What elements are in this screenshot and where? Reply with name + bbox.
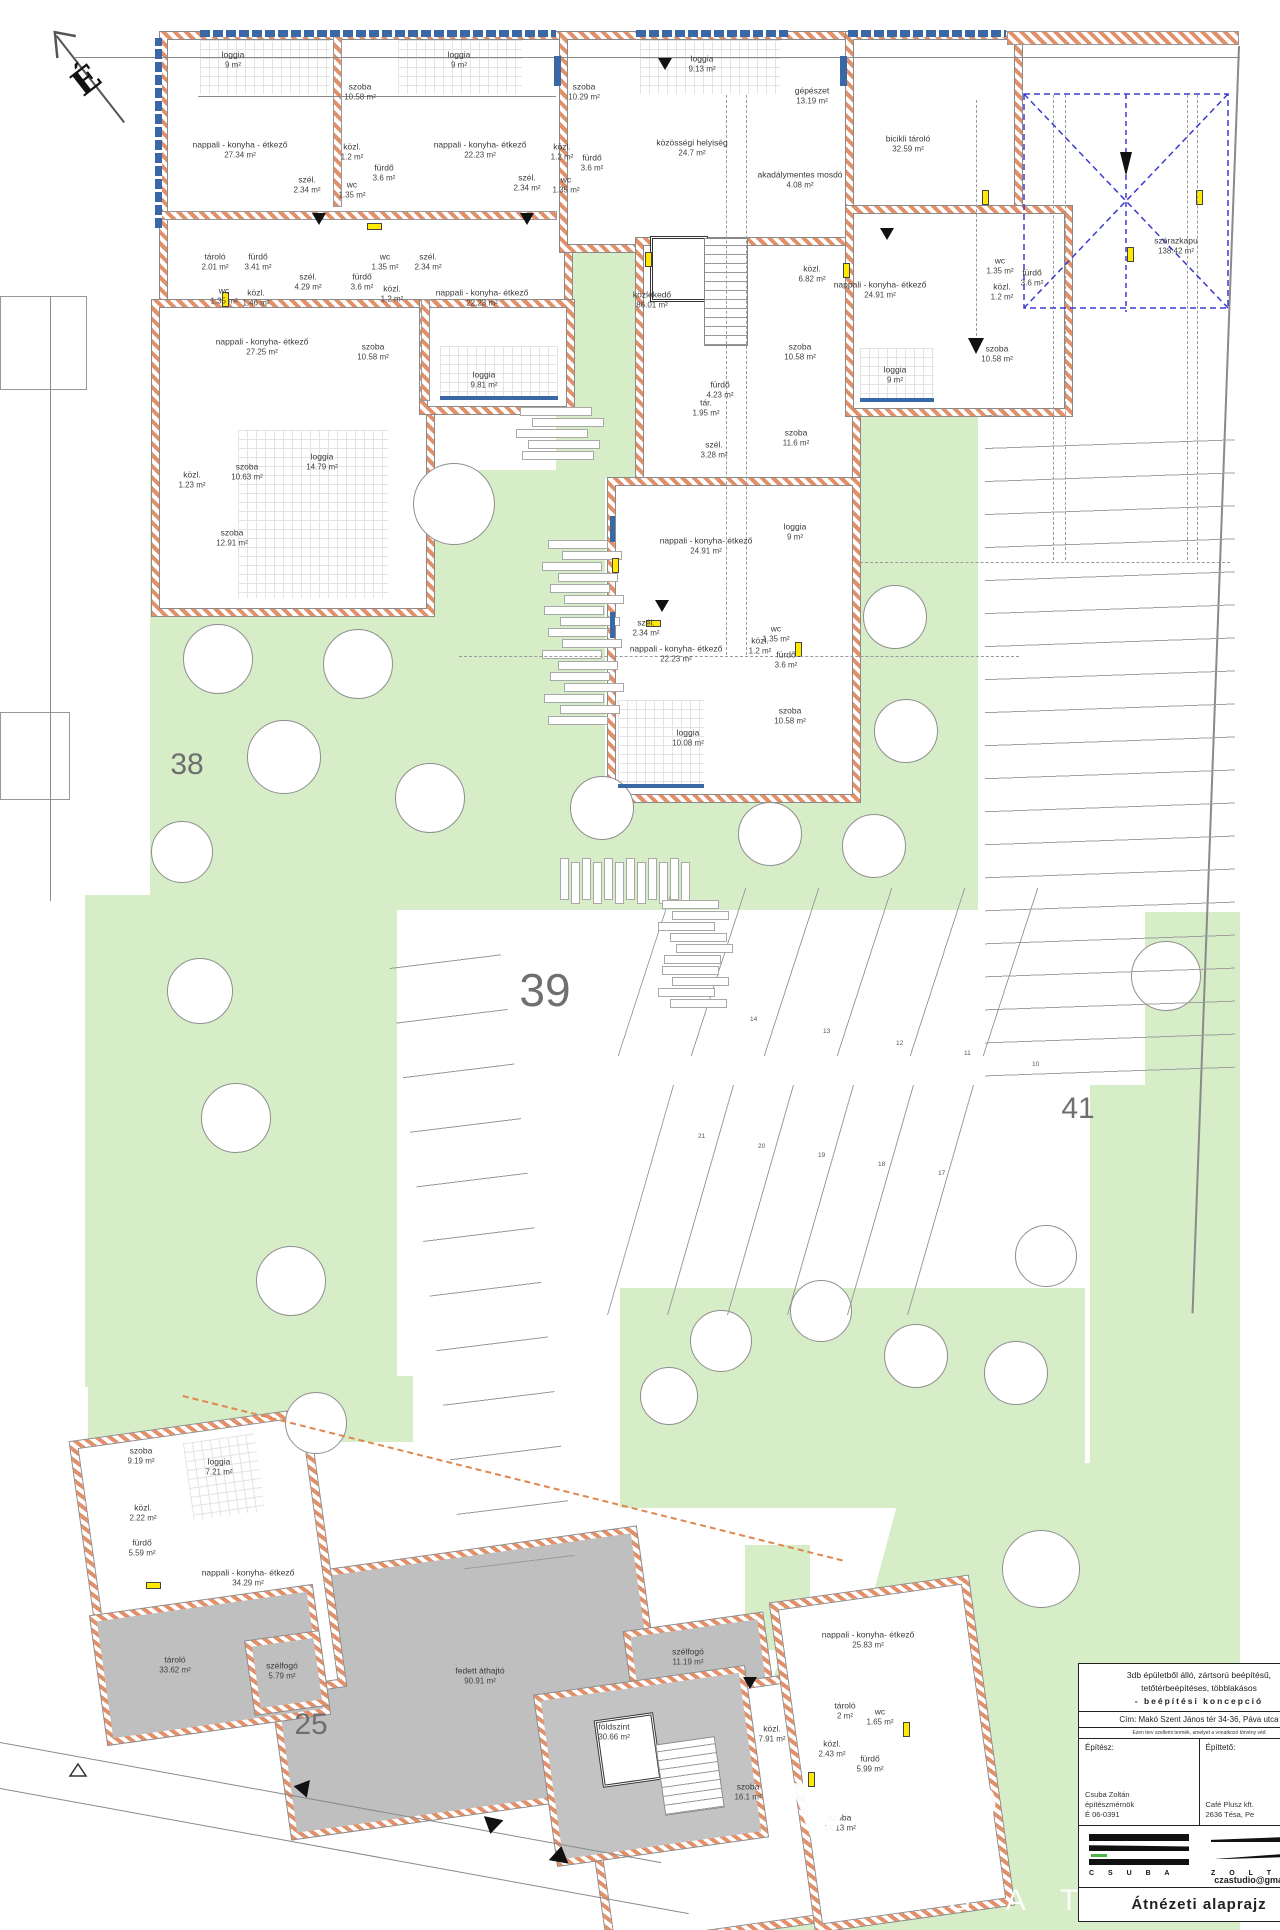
room-name: wc: [866, 1707, 893, 1718]
utility-mark: [367, 223, 382, 230]
room-name: földszint: [598, 1722, 630, 1733]
parking-stall-number: 17: [938, 1170, 945, 1177]
room-label: szoba11.6 m²: [783, 428, 810, 449]
room-label: nappali - konyha- étkező22.23 m²: [434, 140, 527, 161]
room-label: fürdő3.6 m²: [373, 163, 396, 184]
tree: [167, 958, 233, 1024]
room-label: loggia14.79 m²: [306, 452, 338, 473]
room-area: 3.6 m²: [581, 163, 604, 173]
room-label: szélfogó5.79 m²: [266, 1661, 298, 1682]
room-area: 10.58 m²: [357, 352, 389, 362]
boundary-wall-top-right: [1008, 32, 1238, 44]
room-name: loggia: [688, 54, 715, 65]
room-label: szoba10.63 m²: [231, 462, 263, 483]
window-strip: [636, 30, 788, 37]
logo-letters-left: C S U B A: [1089, 1870, 1175, 1877]
room-label: szél.3.28 m²: [700, 440, 727, 461]
room-name: közl.: [341, 142, 364, 153]
paving-bar: [662, 966, 719, 975]
room-area: 9.81 m²: [470, 380, 497, 390]
internal-wall: [160, 212, 556, 219]
desc-line1: 3db épületből álló, zártsorú beépítésű,: [1127, 1670, 1271, 1680]
paving-bar: [564, 683, 624, 692]
room-area: 2.34 m²: [513, 183, 540, 193]
room-area: 4.29 m²: [294, 282, 321, 292]
room-label: loggia9 m²: [222, 50, 245, 71]
building-bike-storage: [846, 32, 1022, 220]
parking-stall-number: 19: [818, 1152, 825, 1159]
room-area: 22.23 m²: [436, 298, 529, 308]
tree: [413, 463, 495, 545]
paving-bar: [670, 858, 679, 900]
tree: [640, 1367, 698, 1425]
room-name: szoba: [981, 344, 1013, 355]
paving-bar: [528, 440, 600, 449]
room-label: nappali - konyha- étkező24.91 m²: [660, 536, 753, 557]
neighbor-building: [0, 296, 87, 390]
tree: [984, 1341, 1048, 1405]
paving-bar: [560, 858, 569, 900]
room-area: 3.6 m²: [351, 282, 374, 292]
room-name: fürdő: [706, 380, 733, 391]
room-name: nappali - konyha- étkező: [834, 280, 927, 291]
paving-bar: [658, 922, 715, 931]
room-label: tároló33.62 m²: [159, 1655, 191, 1676]
room-name: nappali - konyha- étkező: [202, 1568, 295, 1579]
room-label: közl.2.43 m²: [818, 1739, 845, 1760]
room-name: gépészet: [795, 86, 830, 97]
room-area: 1.65 m²: [866, 1717, 893, 1727]
paving-bar: [558, 573, 618, 582]
room-label: tár.1.95 m²: [692, 398, 719, 419]
room-area: 1.95 m²: [692, 408, 719, 418]
room-area: 1.2 m²: [381, 294, 404, 304]
room-area: 10.63 m²: [231, 472, 263, 482]
room-name: szoba: [216, 528, 248, 539]
room-label: nappali - konyha- étkező22.23 m²: [630, 644, 723, 665]
room-name: loggia: [784, 522, 807, 533]
room-area: 10.58 m²: [784, 352, 816, 362]
tree: [395, 763, 465, 833]
room-label: szoba10.58 m²: [344, 82, 376, 103]
room-label: szoba10.58 m²: [357, 342, 389, 363]
room-label: szoba12.91 m²: [216, 528, 248, 549]
room-name: bicikli tároló: [886, 134, 930, 145]
paving-bar: [626, 858, 635, 900]
room-area: 5.59 m²: [128, 1548, 155, 1558]
room-label: fedett áthajtó90.91 m²: [455, 1666, 504, 1687]
room-area: 24.91 m²: [834, 290, 927, 300]
room-area: 7.21 m²: [205, 1467, 232, 1477]
window-strip: [440, 396, 558, 400]
room-area: 16.1 m²: [734, 1792, 761, 1802]
paving-bar: [648, 858, 657, 900]
utility-mark: [645, 252, 652, 267]
tree: [874, 699, 938, 763]
client-address: 2636 Tésa, Pe: [1206, 1810, 1255, 1819]
architect-label: Építész:: [1085, 1743, 1114, 1752]
architect-name: Csuba Zoltán: [1085, 1790, 1130, 1799]
room-label: tároló2 m²: [834, 1701, 855, 1722]
room-name: szélfogó: [672, 1647, 704, 1658]
site-plan-canvas: É loggia9 m²szoba10.58 m²loggia9 m²nappa…: [0, 0, 1280, 1930]
room-label: akadálymentes mosdó4.08 m²: [757, 170, 842, 191]
room-label: fürdő3.41 m²: [244, 252, 271, 273]
room-area: 13.19 m²: [795, 96, 830, 106]
room-area: 32.59 m²: [886, 144, 930, 154]
paving-bar: [664, 955, 721, 964]
room-label: loggia9 m²: [448, 50, 471, 71]
room-area: 3.41 m²: [244, 262, 271, 272]
room-area: 24.7 m²: [656, 148, 727, 158]
room-label: tároló2.01 m²: [201, 252, 228, 273]
paving-bar: [532, 418, 604, 427]
room-label: szoba10.58 m²: [774, 706, 806, 727]
room-name: loggia: [470, 370, 497, 381]
paving-bar: [670, 933, 727, 942]
room-name: tár.: [692, 398, 719, 409]
room-label: loggia9.81 m²: [470, 370, 497, 391]
room-name: fürdő: [373, 163, 396, 174]
room-area: 9 m²: [448, 60, 471, 70]
room-label: szoba10.58 m²: [981, 344, 1013, 365]
dashed-line: [976, 100, 977, 336]
paving-bar: [582, 858, 591, 900]
room-area: 86.01 m²: [633, 300, 671, 310]
room-name: fedett áthajtó: [455, 1666, 504, 1677]
room-name: loggia: [448, 50, 471, 61]
room-area: 22.23 m²: [434, 150, 527, 160]
room-area: 2.34 m²: [414, 262, 441, 272]
room-name: szoba: [357, 342, 389, 353]
entrance-arrow-icon: [743, 1677, 757, 1689]
room-name: loggia: [672, 728, 704, 739]
room-label: szél.2.34 m²: [293, 175, 320, 196]
room-area: 3.6 m²: [1021, 278, 1044, 288]
room-area: 1.2 m²: [991, 292, 1014, 302]
room-name: szoba: [344, 82, 376, 93]
room-label: közl.1.2 m²: [749, 636, 772, 657]
room-label: fürdő3.6 m²: [775, 650, 798, 671]
paving-bar: [672, 977, 729, 986]
room-name: loggia: [205, 1457, 232, 1468]
room-area: 11.6 m²: [783, 438, 810, 448]
tree: [201, 1083, 271, 1153]
room-label: wc1.35 m²: [371, 252, 398, 273]
room-name: szél.: [700, 440, 727, 451]
room-label: szoba9.19 m²: [127, 1446, 154, 1467]
room-label: szárazkapu138.42 m²: [1154, 236, 1197, 257]
room-area: 33.62 m²: [159, 1665, 191, 1675]
room-area: 1.2 m²: [341, 152, 364, 162]
utility-mark: [903, 1722, 910, 1737]
room-label: szél.2.34 m²: [513, 173, 540, 194]
north-arrow-icon: É: [25, 13, 157, 147]
room-label: loggia9.13 m²: [688, 54, 715, 75]
architect-reg: É 06-0391: [1085, 1810, 1120, 1819]
room-area: 1.23 m²: [178, 480, 205, 490]
room-name: közl.: [818, 1739, 845, 1750]
room-name: wc: [986, 256, 1013, 267]
room-label: szoba10.58 m²: [784, 342, 816, 363]
room-name: közl.: [758, 1724, 785, 1735]
tree: [247, 720, 321, 794]
paving-bar: [544, 606, 604, 615]
room-name: szél.: [294, 272, 321, 283]
paving-bar: [548, 540, 608, 549]
north-letter: É: [64, 57, 109, 104]
green-area: [1090, 1085, 1240, 1510]
room-area: 4.08 m²: [757, 180, 842, 190]
room-name: közl.: [991, 282, 1014, 293]
room-label: szél.2.34 m²: [632, 618, 659, 639]
client-cell: Építtető: Café Plusz kft. 2636 Tésa, Pe: [1199, 1739, 1280, 1825]
room-label: loggia9 m²: [884, 365, 907, 386]
plot-number: 25: [294, 1708, 327, 1742]
parking-stall-number: 11: [964, 1050, 971, 1057]
room-area: 10.08 m²: [672, 738, 704, 748]
room-name: szoba: [231, 462, 263, 473]
room-area: 27.34 m²: [193, 150, 288, 160]
room-area: 12.91 m²: [216, 538, 248, 548]
room-label: közl.1.2 m²: [551, 142, 574, 163]
room-label: bicikli tároló32.59 m²: [886, 134, 930, 155]
tree: [842, 814, 906, 878]
window-strip: [610, 516, 615, 542]
left-boundary-line: [50, 296, 51, 901]
room-area: 24.91 m²: [660, 546, 753, 556]
room-label: nappali - konyha - étkező27.34 m²: [193, 140, 288, 161]
paving-bar: [662, 900, 719, 909]
room-label: nappali - konyha- étkező24.91 m²: [834, 280, 927, 301]
room-label: fürdő3.6 m²: [351, 272, 374, 293]
parking-stall-number: 20: [758, 1143, 765, 1150]
room-label: fürdő3.6 m²: [1021, 268, 1044, 289]
client-label: Építtető:: [1206, 1743, 1236, 1752]
room-area: 9 m²: [222, 60, 245, 70]
street-marker: [292, 1777, 310, 1797]
plot-number: 39: [519, 963, 570, 1017]
street-marker: [549, 1844, 571, 1863]
room-area: 22.23 m²: [630, 654, 723, 664]
tree: [738, 802, 802, 866]
paving-bar: [615, 862, 624, 904]
loggia-edge-line: [198, 96, 556, 97]
dashed-line: [459, 656, 1019, 657]
room-name: közlekedő: [633, 290, 671, 301]
project-description: 3db épületből álló, zártsorú beépítésű, …: [1079, 1664, 1280, 1712]
room-area: 9 m²: [784, 532, 807, 542]
room-label: közl.1.2 m²: [381, 284, 404, 305]
room-area: 3.6 m²: [373, 173, 396, 183]
room-name: szél.: [513, 173, 540, 184]
room-label: nappali - konyha- étkező25.83 m²: [822, 1630, 915, 1651]
parking-rows-mid: [607, 1085, 1023, 1315]
paving-bar: [593, 862, 602, 904]
tree: [1015, 1225, 1077, 1287]
parking-stall-number: 21: [698, 1133, 705, 1140]
dashed-line: [860, 562, 1230, 563]
room-name: wc: [371, 252, 398, 263]
room-area: 14.79 m²: [306, 462, 338, 472]
room-name: szél.: [632, 618, 659, 629]
title-block: 3db épületből álló, zártsorú beépítésű, …: [1078, 1663, 1280, 1922]
room-label: közl.1.46 m²: [242, 288, 269, 309]
room-area: 9.19 m²: [127, 1456, 154, 1466]
paving-bar: [659, 862, 668, 904]
room-area: 25.83 m²: [822, 1640, 915, 1650]
room-label: közösségi helyiség24.7 m²: [656, 138, 727, 159]
loggia-floor: [440, 346, 558, 396]
room-name: tároló: [201, 252, 228, 263]
client-name: Café Plusz kft.: [1206, 1800, 1254, 1809]
room-name: tároló: [834, 1701, 855, 1712]
dashed-line: [726, 95, 727, 655]
room-area: 10.29 m²: [568, 92, 600, 102]
utility-mark: [146, 1582, 161, 1589]
room-name: közl.: [381, 284, 404, 295]
room-name: fürdő: [581, 153, 604, 164]
loggia-floor: [200, 40, 330, 94]
room-name: fürdő: [351, 272, 374, 283]
room-area: 1.35 m²: [210, 296, 237, 306]
parking-column-left: [387, 936, 574, 1570]
room-label: loggia10.08 m²: [672, 728, 704, 749]
room-area: 5.79 m²: [266, 1671, 298, 1681]
tree: [884, 1324, 948, 1388]
paving-bar: [571, 862, 580, 904]
neighbor-building: [0, 712, 70, 800]
room-label: földszint30.66 m²: [598, 1722, 630, 1743]
room-area: 3.6 m²: [775, 660, 798, 670]
staircase: [655, 1736, 724, 1816]
plot-number: 41: [1061, 1092, 1094, 1126]
room-name: wc: [210, 286, 237, 297]
room-area: 1.35 m²: [371, 262, 398, 272]
room-name: nappali - konyha - étkező: [193, 140, 288, 151]
room-area: 30.66 m²: [598, 1732, 630, 1742]
room-area: 2.01 m²: [201, 262, 228, 272]
window-strip: [860, 398, 934, 402]
room-label: nappali - konyha- étkező22.23 m²: [436, 288, 529, 309]
window-strip: [200, 30, 556, 37]
room-label: közl.1.2 m²: [341, 142, 364, 163]
room-name: fürdő: [1021, 268, 1044, 279]
paving-bar: [550, 584, 610, 593]
tree: [863, 585, 927, 649]
room-name: loggia: [884, 365, 907, 376]
room-name: loggia: [306, 452, 338, 463]
room-area: 6.82 m²: [798, 274, 825, 284]
room-name: loggia: [222, 50, 245, 61]
tree: [183, 624, 253, 694]
room-name: szoba: [774, 706, 806, 717]
paving-bar: [564, 595, 624, 604]
tree: [323, 629, 393, 699]
room-name: közl.: [798, 264, 825, 275]
paving-bar: [558, 661, 618, 670]
room-name: szoba: [784, 342, 816, 353]
room-area: 2.34 m²: [293, 185, 320, 195]
entrance-arrow-icon: [312, 213, 326, 225]
room-name: szélfogó: [266, 1661, 298, 1672]
room-area: 90.91 m²: [455, 1676, 504, 1686]
room-name: nappali - konyha- étkező: [660, 536, 753, 547]
utility-mark: [843, 263, 850, 278]
room-area: 1.35 m²: [986, 266, 1013, 276]
watermark-small: I N G A T: [845, 1884, 1092, 1918]
room-name: szoba: [127, 1446, 154, 1457]
paving-bar: [548, 628, 608, 637]
paving-bar: [562, 639, 622, 648]
room-name: közösségi helyiség: [656, 138, 727, 149]
room-area: 7.91 m²: [758, 1734, 785, 1744]
paving-bar: [658, 988, 715, 997]
room-label: nappali - konyha- étkező27.25 m²: [216, 337, 309, 358]
room-label: közl.1.23 m²: [178, 470, 205, 491]
architect-cell: Építész: Csuba Zoltán építészmérnök É 06…: [1079, 1739, 1199, 1825]
room-label: közl.1.2 m²: [991, 282, 1014, 303]
paving-bar: [670, 999, 727, 1008]
room-name: wc: [552, 175, 579, 186]
paving-bar: [550, 672, 610, 681]
room-label: wc1.35 m²: [986, 256, 1013, 277]
entrance-arrow-icon: [655, 600, 669, 612]
room-label: wc1.35 m²: [338, 180, 365, 201]
room-name: fürdő: [775, 650, 798, 661]
room-area: 1.35 m²: [338, 190, 365, 200]
window-strip: [618, 784, 704, 788]
room-name: wc: [762, 624, 789, 635]
room-label: wc1.65 m²: [866, 1707, 893, 1728]
tree: [1002, 1530, 1080, 1608]
room-label: fürdő3.6 m²: [581, 153, 604, 174]
entrance-arrow-icon: [658, 58, 672, 70]
room-name: közl.: [178, 470, 205, 481]
room-name: közl.: [749, 636, 772, 647]
window-strip: [554, 56, 561, 86]
room-label: közlekedő86.01 m²: [633, 290, 671, 311]
room-area: 34.29 m²: [202, 1578, 295, 1588]
watermark-big: VÁR: [790, 1762, 1005, 1872]
room-name: nappali - konyha- étkező: [436, 288, 529, 299]
project-address: Cím: Makó Szent János tér 34-36, Páva ut…: [1079, 1712, 1280, 1728]
room-label: loggia7.21 m²: [205, 1457, 232, 1478]
paving-bar: [604, 858, 613, 900]
room-name: fürdő: [244, 252, 271, 263]
room-label: szoba10.29 m²: [568, 82, 600, 103]
legal-note: Ezen terv szellemi termék, amelyet a von…: [1079, 1728, 1280, 1739]
room-area: 1.2 m²: [551, 152, 574, 162]
parking-stall-number: 10: [1032, 1061, 1039, 1068]
window-strip: [840, 56, 847, 86]
room-area: 2.22 m²: [129, 1513, 156, 1523]
room-name: szoba: [783, 428, 810, 439]
sheet-title: Átnézeti alaprajz: [1079, 1888, 1280, 1921]
desc-line3: - beépítési koncepció: [1135, 1696, 1263, 1706]
room-label: szélfogó11.19 m²: [672, 1647, 704, 1668]
room-name: nappali - konyha- étkező: [630, 644, 723, 655]
tree: [690, 1310, 752, 1372]
paving-bar: [522, 451, 594, 460]
room-area: 138.42 m²: [1154, 246, 1197, 256]
window-strip: [848, 30, 1006, 37]
room-area: 1.2 m²: [749, 646, 772, 656]
desc-line2: tetőtérbeépítéses, többlakásos: [1141, 1683, 1257, 1693]
logo-green-accent: [1091, 1854, 1107, 1857]
room-area: 2.34 m²: [632, 628, 659, 638]
room-label: közl.2.22 m²: [129, 1503, 156, 1524]
